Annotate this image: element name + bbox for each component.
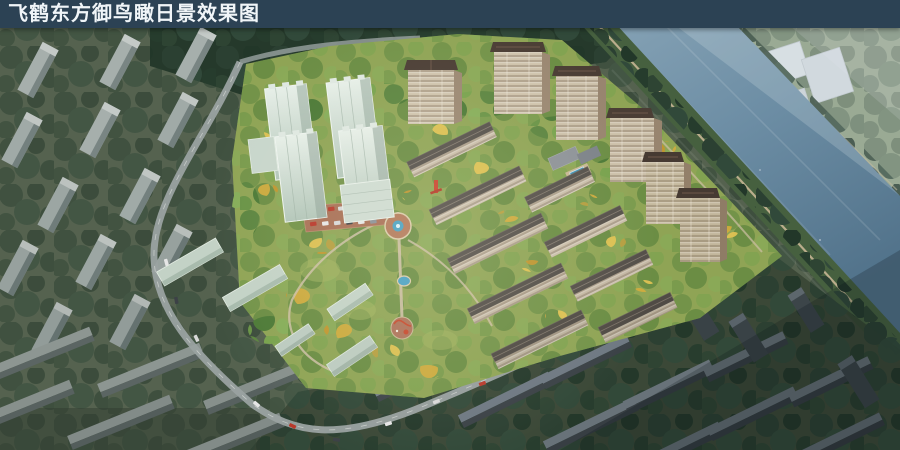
aerial-rendering bbox=[0, 0, 900, 450]
page-title: 飞鹤东方御鸟瞰日景效果图 bbox=[0, 0, 260, 28]
rendering-viewport: 飞鹤东方御鸟瞰日景效果图 bbox=[0, 0, 900, 450]
title-bar: 飞鹤东方御鸟瞰日景效果图 bbox=[0, 0, 900, 28]
highrise-tower bbox=[676, 188, 727, 262]
